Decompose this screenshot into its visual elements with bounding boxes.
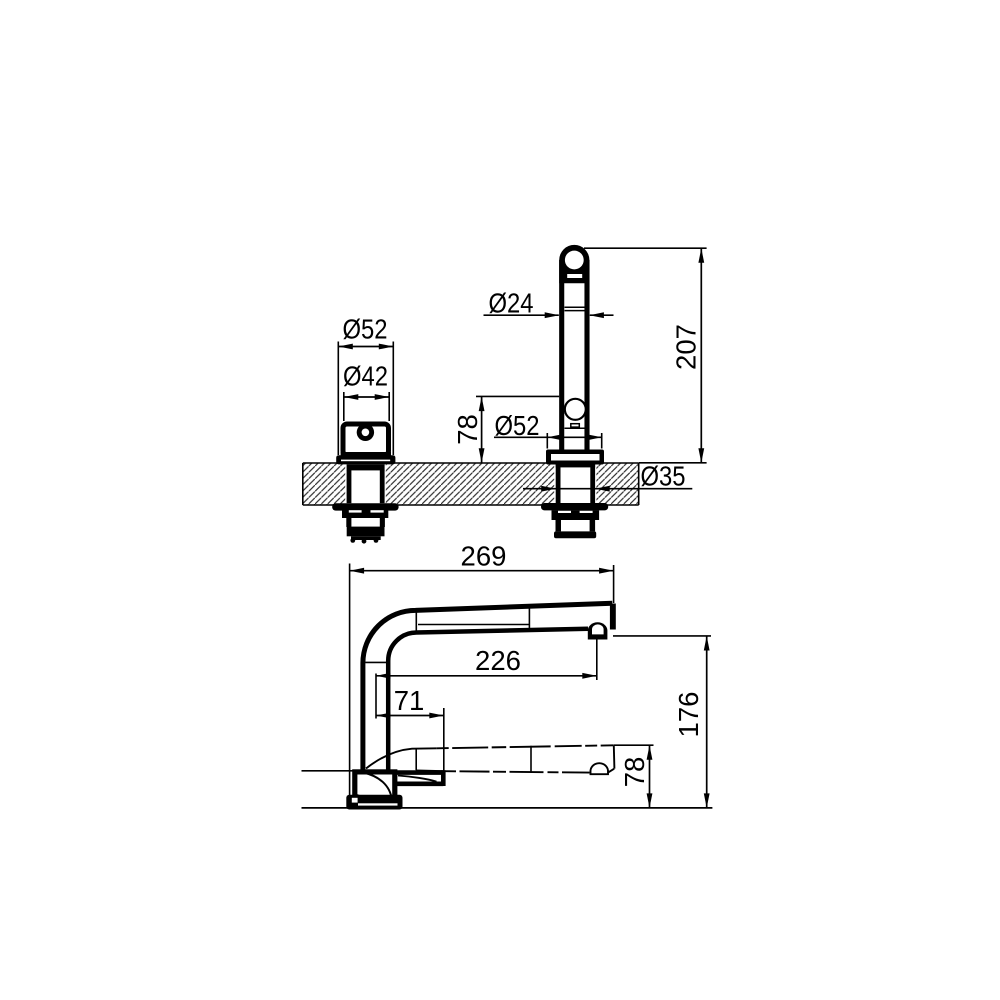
svg-text:176: 176 bbox=[673, 692, 704, 738]
svg-text:207: 207 bbox=[671, 324, 702, 370]
svg-text:Ø52: Ø52 bbox=[343, 314, 388, 345]
svg-text:Ø42: Ø42 bbox=[343, 361, 388, 392]
svg-text:269: 269 bbox=[461, 541, 507, 572]
svg-text:78: 78 bbox=[619, 757, 650, 788]
svg-text:78: 78 bbox=[452, 414, 483, 445]
svg-text:Ø52: Ø52 bbox=[495, 410, 540, 441]
svg-text:71: 71 bbox=[394, 685, 425, 716]
svg-text:Ø24: Ø24 bbox=[489, 288, 534, 319]
svg-text:226: 226 bbox=[475, 645, 521, 676]
svg-text:Ø35: Ø35 bbox=[641, 461, 686, 492]
